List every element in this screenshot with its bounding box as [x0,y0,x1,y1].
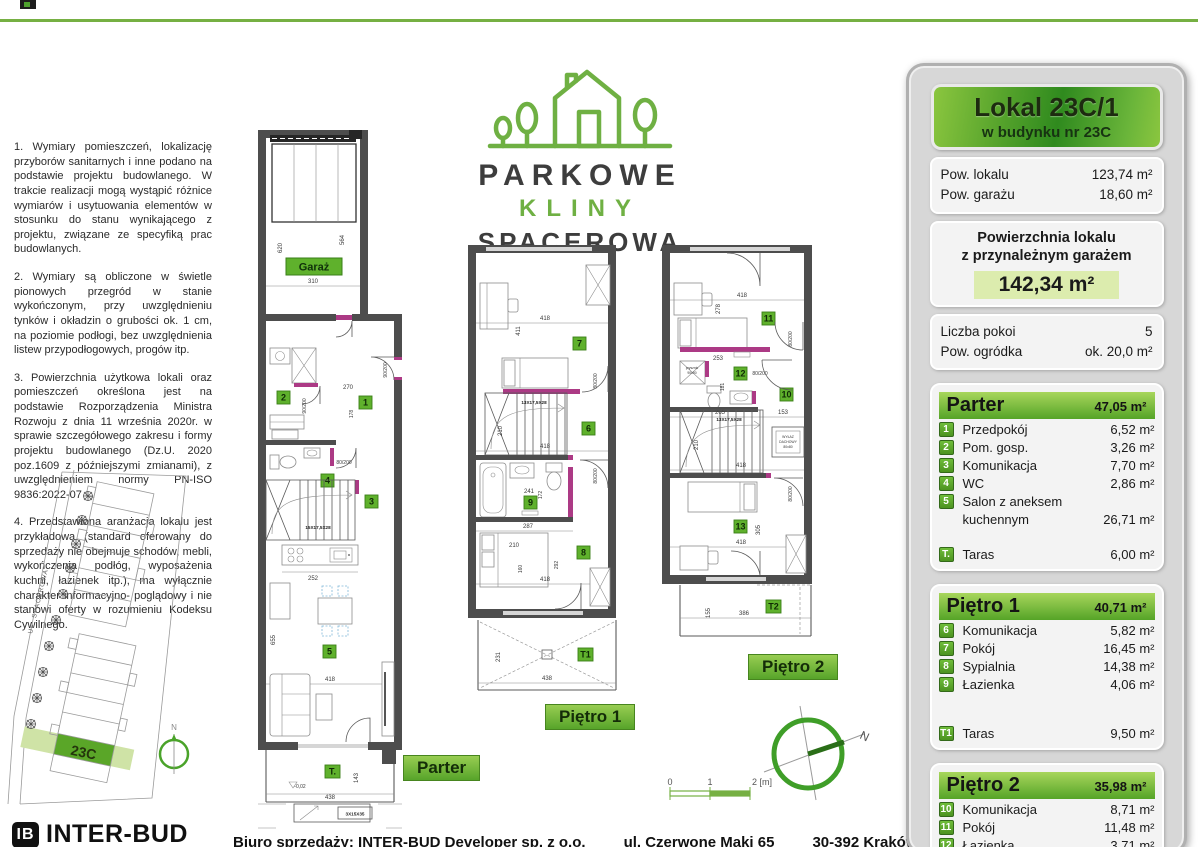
room-badge-2: 2 [277,391,290,404]
kitchen-counter [282,545,358,565]
room-row: 5 Salon z aneksem [939,494,1155,509]
room-row: 7 Pokój 16,45 m² [939,641,1155,656]
dim-label: 155 [706,607,712,618]
dim-label: 418 [540,577,551,583]
dim-label: 418 [736,463,747,469]
room-area: 7,70 m² [1110,458,1154,473]
sales-office-footer: Biuro sprzedaży: INTER-BUD Developer sp.… [233,834,956,847]
plan-caption-parter: Parter [403,755,480,781]
room-badge-5: 5 [323,645,336,658]
svg-text:T2: T2 [768,602,779,612]
interbud-monogram-icon: IB [12,822,39,847]
svg-text:7: 7 [577,339,582,349]
room-badge-7: 7 [573,337,586,350]
room-row: 10 Komunikacja 8,71 m² [939,802,1155,817]
dim-label: 143 [354,772,360,783]
room-row: 9 Łazienka 4,06 m² [939,677,1155,692]
dim-label: 310 [308,279,319,285]
room-area: 6,52 m² [1110,422,1154,437]
dim-label: 270 [343,385,354,391]
room-area: 11,48 m² [1104,820,1154,835]
area-summary-box: Pow. lokalu 123,74 m² Pow. garażu 18,60 … [930,157,1164,214]
svg-text:13X17,5X28: 13X17,5X28 [716,417,742,422]
room-label: Łazienka [963,677,1015,692]
terrace-badge: T1 [939,726,954,741]
dim-label: 418 [325,677,336,683]
room-area: 5,82 m² [1110,623,1154,638]
dim-label: 181 [720,383,726,392]
dim-label: 564 [340,234,346,245]
floorplan-sheet: 1. Wymiary pomieszczeń, lokalizację przy… [0,0,1198,847]
site-plan: 23C UL. SPACEROWA N [0,466,232,810]
dim-label: 90/200 [302,398,308,414]
unit-subtitle: w budynku nr 23C [934,124,1160,141]
dim-label: 210 [694,439,700,450]
total-area-label: z przynależnym garażem [941,247,1153,265]
dim-label: 80/200 [788,486,794,502]
dim-label: 80/200 [593,468,599,484]
compass-label: N [858,728,872,744]
bed-single [502,358,568,388]
dim-label: 172 [538,491,544,500]
room-label: kuchennym [963,512,1029,527]
floor-plan-parter: 620 564 310 Garaż 90/200 90/200 270 178 … [256,128,404,840]
wardrobe [786,535,806,573]
floor-area: 47,05 m² [1094,399,1146,414]
unit-header: Lokal 23C/1 w budynku nr 23C [931,84,1163,150]
desk [680,546,718,570]
area-label: Pow. garażu [941,185,1015,205]
floor-name: Piętro 2 [947,774,1020,797]
wardrobe [586,265,610,305]
floor-name: Parter [947,394,1005,417]
dim-label: 241 [524,489,535,495]
detail-label: Liczba pokoi [941,322,1016,342]
svg-text:3: 3 [369,497,374,507]
wardrobe [590,568,610,606]
svg-text:2: 2 [281,393,286,403]
staircase: 13X17,5X28 [485,393,567,455]
detail-value: 5 [1145,322,1153,342]
room-row: 4 WC 2,86 m² [939,476,1155,491]
dim-label: 231 [496,651,502,662]
room-badge-9: 9 [524,496,537,509]
room-badge-1: 1 [359,396,372,409]
room-row: 12 Łazienka 3,71 m² [939,838,1155,847]
room-label: Komunikacja [963,623,1037,638]
terrace-row: T1 Taras 9,50 m² [939,726,1155,741]
tv-cabinet [382,662,394,736]
staircase: 13X17,5X28 [680,410,763,473]
note-paragraph: 2. Wymiary są obliczone w świetle pionow… [14,270,212,358]
room-label: Przedpokój [963,422,1028,437]
bed-double [480,533,548,587]
detail-label: Pow. ogródka [941,342,1023,362]
terrace-area: 6,00 m² [1110,547,1154,562]
details-box: Liczba pokoi 5 Pow. ogródka ok. 20,0 m² [930,314,1164,371]
compass-icon: N [762,700,872,804]
area-value: 123,74 m² [1092,165,1153,185]
svg-text:80x80: 80x80 [783,445,792,449]
room-number-badge: 4 [939,476,954,491]
room-number-badge: 3 [939,458,954,473]
room-row-continuation: kuchennym 26,71 m² [939,512,1155,527]
dim-label: 90/200 [383,362,389,378]
room-badge-8: 8 [577,546,590,559]
room-label: Salon z aneksem [963,494,1063,509]
dim-label: 278 [716,303,722,314]
terrace-area: 9,50 m² [1110,726,1154,741]
scale-bar: 0 1 2 [m] [662,776,772,804]
floor-box-parter: Parter 47,05 m² 1 Przedpokój 6,52 m² 2 P… [930,383,1164,571]
room-area: 4,06 m² [1110,677,1154,692]
top-accent-line [0,19,1198,22]
footer-street: ul. Czerwone Maki 65 [624,834,775,847]
room-badge-11: 11 [762,312,775,325]
scale-tick-label: 1 [707,777,712,787]
bed-single [678,318,747,348]
room-label: Łazienka [963,838,1015,847]
detail-row: Liczba pokoi 5 [941,322,1153,342]
area-label: Pow. lokalu [941,165,1009,185]
footer-office: Biuro sprzedaży: INTER-BUD Developer sp.… [233,834,586,847]
toilet [707,386,721,409]
terrace: T. -0,02 143 438 [266,750,396,802]
washing-machine [270,348,290,364]
dim-label: 80/200 [788,331,794,347]
svg-text:13X17,5X28: 13X17,5X28 [521,400,547,405]
total-area-value: 142,34 m² [974,271,1120,299]
room-row: 6 Komunikacja 5,82 m² [939,623,1155,638]
sofa [270,674,332,736]
svg-text:prysznic: prysznic [686,366,699,370]
desk [674,283,712,315]
project-brand: PARKOWE KLINY SPACEROWA [440,48,720,258]
dim-label: 178 [349,410,355,419]
svg-text:12: 12 [735,369,745,379]
floor-header: Piętro 2 35,98 m² [939,772,1155,799]
terrace-label: Taras [963,547,995,562]
area-value: 18,60 m² [1099,185,1152,205]
fridge [270,583,290,619]
building-block-lower: 23C [17,627,156,787]
svg-text:8: 8 [581,548,586,558]
dim-label: 418 [736,540,747,546]
room-number-badge: 12 [939,838,954,847]
dim-label: 253 [713,356,724,362]
terrace: 155 386 T2 [680,585,811,636]
room-area: 16,45 m² [1103,641,1154,656]
washbasin [304,448,320,458]
toilet [270,455,296,469]
dim-label: 418 [737,293,748,299]
detail-row: Pow. ogródka ok. 20,0 m² [941,342,1153,362]
plan-caption-pietro1: Piętro 1 [545,704,635,730]
unit-info-panel: Lokal 23C/1 w budynku nr 23C Pow. lokalu… [906,63,1187,847]
dim-label: 655 [271,634,277,645]
floor-area: 40,71 m² [1094,600,1146,615]
dim-label: 305 [756,524,762,535]
door-arc [555,583,581,609]
toilet [546,463,562,490]
dim-label: 438 [542,676,553,682]
room-row: 1 Przedpokój 6,52 m² [939,422,1155,437]
area-row: Pow. garażu 18,60 m² [941,185,1153,205]
room-number-badge: 6 [939,623,954,638]
svg-text:15X17,5X28: 15X17,5X28 [305,525,331,530]
room-label: Pokój [963,641,996,656]
terrace-door-arc [346,718,370,742]
building-block-upper [61,480,161,628]
garage-parking-space [272,144,356,222]
svg-text:3X15X35: 3X15X35 [346,812,365,817]
room-number-badge: 11 [939,820,954,835]
room-area: 3,71 m² [1110,838,1154,847]
room-badge-13: 13 [734,520,747,533]
svg-text:6: 6 [586,424,591,434]
footer-city: 30-392 Kraków [812,834,917,847]
room-number-badge: 1 [939,422,954,437]
dim-label: 386 [739,611,750,617]
room-badge-3: 3 [365,495,378,508]
terrace-badge: T2 [766,600,781,613]
shower: prysznic 90x90 [680,361,705,384]
svg-text:DACHOWY: DACHOWY [779,440,797,444]
plan-caption-pietro2: Piętro 2 [748,654,838,680]
room-row: 11 Pokój 11,48 m² [939,820,1155,835]
developer-name: INTER-BUD [46,820,188,847]
terrace-label: Taras [963,726,995,741]
room-number-badge: 10 [939,802,954,817]
floor-header: Piętro 1 40,71 m² [939,593,1155,620]
bathtub [480,463,506,517]
site-compass-label: N [171,723,177,732]
floor-plan-pietro1: 418 411 7 80/200 13X17,5X28 210 418 6 [466,243,642,705]
terrace-badge: T1 [578,648,593,661]
garage-label: Garaż [286,258,342,275]
total-area-box: Powierzchnia lokalu z przynależnym garaż… [930,221,1164,307]
svg-text:4: 4 [325,476,330,486]
room-area: 3,26 m² [1110,440,1154,455]
dim-label: 620 [278,242,284,253]
room-label: Pokój [963,820,996,835]
terrace: 231 438 T1 [478,620,616,690]
wardrobe [292,348,316,383]
svg-text:90x90: 90x90 [687,371,696,375]
room-label: Komunikacja [963,458,1037,473]
door-arc [727,253,760,286]
room-badge-12: 12 [734,367,747,380]
floor-name: Piętro 1 [947,595,1020,618]
desk [480,283,518,329]
terrace-badge: T. [325,765,340,778]
exterior-steps: 3X15X35 [258,804,402,828]
dim-label: 411 [516,326,522,336]
room-number-badge: 7 [939,641,954,656]
room-number-badge: 2 [939,440,954,455]
roof-window [734,352,750,357]
dim-label: 210 [509,543,520,549]
room-badge-6: 6 [582,422,595,435]
brand-name-secondary: KLINY [440,195,720,223]
washbasin [730,391,752,404]
roof-hatch: WYŁAZ DACHOWY 80x80 [772,427,804,457]
room-label: Pom. gosp. [963,440,1029,455]
site-compass-icon: N [160,723,188,774]
print-mark [20,0,36,9]
svg-text:11: 11 [764,314,774,324]
room-label: Sypialnia [963,659,1016,674]
washbasin [510,463,534,478]
dim-label: 153 [778,410,789,416]
coffee-table [316,694,332,720]
unit-title: Lokal 23C/1 [934,92,1160,123]
room-area: 8,71 m² [1110,802,1154,817]
level-label: -0,02 [294,784,306,790]
note-paragraph: 1. Wymiary pomieszczeń, lokalizację przy… [14,140,212,257]
dim-label: 418 [540,316,551,322]
dim-label: 287 [523,524,534,530]
room-label: Komunikacja [963,802,1037,817]
area-row: Pow. lokalu 123,74 m² [941,165,1153,185]
floor-area: 35,98 m² [1094,779,1146,794]
floor-plan-pietro2: 418 278 11 80/200 253 prysznic 90x90 12 … [660,243,844,655]
dim-label: 210 [498,425,504,436]
developer-logo: IB INTER-BUD DEVELOPER [12,820,195,847]
svg-text:10: 10 [781,390,791,400]
room-area: 14,38 m² [1103,659,1154,674]
dim-label: 80/200 [593,373,599,389]
svg-text:T.: T. [329,767,336,777]
terrace-row: T. Taras 6,00 m² [939,547,1155,562]
room-number-badge: 5 [939,494,954,509]
room-label: WC [963,476,985,491]
room-area: 26,71 m² [1103,512,1154,527]
dim-label: 160 [518,565,524,574]
shelving [270,415,304,439]
staircase: 15X17,5X28 [266,480,355,540]
dim-label: 80/200 [336,460,352,466]
svg-text:13: 13 [735,522,745,532]
dim-label: 292 [554,561,560,570]
dim-label: 252 [308,576,319,582]
dim-label: 438 [325,795,336,801]
brand-name-primary: PARKOWE [440,159,720,193]
svg-text:T1: T1 [580,650,591,660]
svg-text:Garaż: Garaż [299,262,330,274]
radiator [522,511,538,515]
floor-box-pietro1: Piętro 1 40,71 m² 6 Komunikacja 5,82 m² … [930,584,1164,750]
floor-header: Parter 47,05 m² [939,392,1155,419]
scale-tick-label: 0 [667,777,672,787]
bed-single [688,482,757,512]
svg-text:9: 9 [528,498,533,508]
room-number-badge: 8 [939,659,954,674]
svg-text:WYŁAZ: WYŁAZ [782,435,794,439]
room-row: 8 Sypialnia 14,38 m² [939,659,1155,674]
terrace-badge: T. [939,547,954,562]
room-number-badge: 9 [939,677,954,692]
detail-value: ok. 20,0 m² [1085,342,1153,362]
floor-box-pietro2: Piętro 2 35,98 m² 10 Komunikacja 8,71 m²… [930,763,1164,847]
street-name-label: UL. SPACEROWA [27,568,50,634]
room-row: 3 Komunikacja 7,70 m² [939,458,1155,473]
total-area-label: Powierzchnia lokalu [941,229,1153,247]
room-area: 2,86 m² [1110,476,1154,491]
dim-label: 418 [540,444,551,450]
svg-text:5: 5 [327,647,332,657]
door-arc [731,551,760,575]
house-trees-icon [475,48,685,152]
room-row: 2 Pom. gosp. 3,26 m² [939,440,1155,455]
door-arc [336,321,352,337]
dining-table [318,586,352,636]
svg-text:1: 1 [363,398,368,408]
